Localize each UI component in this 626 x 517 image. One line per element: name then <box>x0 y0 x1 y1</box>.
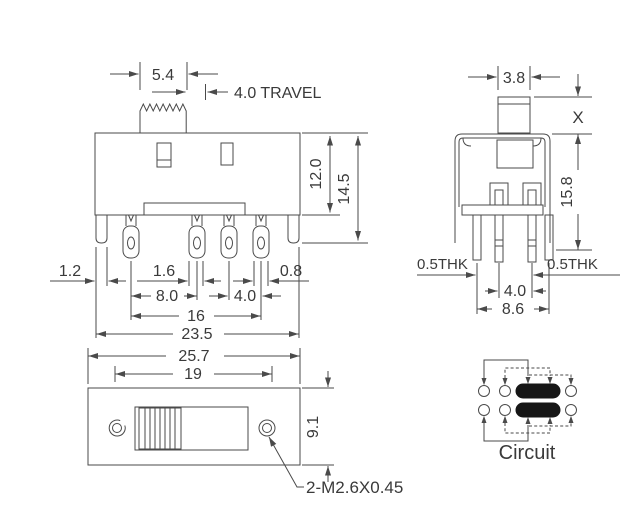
dim-front-leg-width: 1.2 <box>59 263 81 280</box>
slide-switch-drawing: 5.4 4.0 TRAVEL 12.0 14.5 1.2 1.6 <box>0 0 626 517</box>
front-leg-left <box>96 215 107 243</box>
front-knob <box>140 104 186 133</box>
dim-front-leg-span: 23.5 <box>181 326 212 343</box>
circuit-contact-top <box>516 384 560 398</box>
bottom-body <box>88 388 300 465</box>
dim-side-row-span: 8.6 <box>502 301 524 318</box>
front-view <box>95 104 300 258</box>
dim-front-pitch-b: 4.0 <box>234 288 256 305</box>
side-view: 3.8 0.5THK <box>417 66 620 318</box>
mounting-hole-left <box>109 420 125 436</box>
technical-drawing-page: 5.4 4.0 TRAVEL 12.0 14.5 1.2 1.6 <box>0 0 626 517</box>
dim-side-knob-width: 3.8 <box>503 70 525 87</box>
side-pins <box>473 215 553 262</box>
dim-front-travel: 4.0 TRAVEL <box>234 85 322 102</box>
dim-front-total-height: 14.5 <box>336 173 353 204</box>
dim-bottom-slot-width: 19 <box>184 366 202 383</box>
bottom-slot <box>135 407 248 450</box>
dim-side-knob-height: X <box>572 108 583 127</box>
dim-front-knob-width: 5.4 <box>152 67 174 84</box>
dim-front-lug-span: 16 <box>187 308 205 325</box>
dim-front-lug-offset: 0.8 <box>280 263 302 280</box>
circuit-contact-bottom <box>516 403 560 417</box>
dim-side-pin-pitch: 4.0 <box>504 283 526 300</box>
dim-front-pitch-a: 8.0 <box>156 288 178 305</box>
circuit-diagram: Circuit <box>479 360 577 464</box>
label-mounting-thread: 2-M2.6X0.45 <box>306 478 403 497</box>
front-terminal-lugs <box>123 215 269 258</box>
circuit-caption: Circuit <box>499 442 556 464</box>
label-thk-right: 0.5THK <box>547 256 598 273</box>
dim-front-lug-width: 1.6 <box>153 263 175 280</box>
bottom-view: 25.7 19 <box>88 348 403 497</box>
dim-front-body-height: 12.0 <box>308 158 325 189</box>
label-thk-left: 0.5THK <box>417 256 468 273</box>
bottom-slider-knurl <box>139 408 181 449</box>
side-knob <box>498 97 530 133</box>
dim-bottom-body-depth: 9.1 <box>305 416 322 438</box>
dim-bottom-overall-width: 25.7 <box>178 348 209 365</box>
mounting-hole-right <box>259 420 275 436</box>
dim-side-body-height: 15.8 <box>559 176 576 207</box>
front-leg-right <box>288 215 299 243</box>
